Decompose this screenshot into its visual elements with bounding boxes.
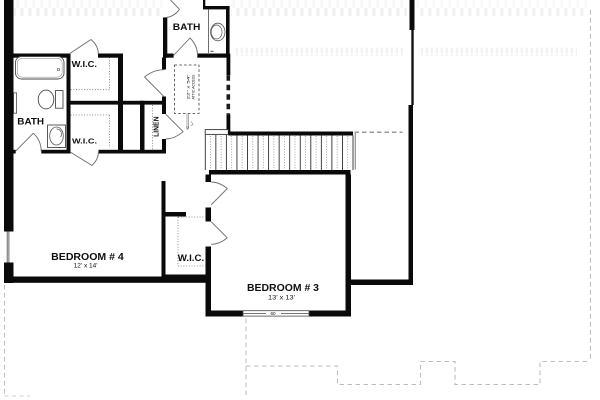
svg-text:13' x 13': 13' x 13' <box>268 295 295 302</box>
svg-text:BEDROOM # 4: BEDROOM # 4 <box>51 252 124 263</box>
svg-text:W.I.C.: W.I.C. <box>72 136 97 145</box>
svg-text:BEDROOM # 3: BEDROOM # 3 <box>247 283 319 294</box>
svg-text:W.I.C.: W.I.C. <box>178 253 204 263</box>
svg-text:BATH: BATH <box>173 22 201 33</box>
svg-text:12' x 14': 12' x 14' <box>74 263 98 270</box>
svg-text:ATTIC ACCESS: ATTIC ACCESS <box>191 74 196 99</box>
svg-text:22" x 54": 22" x 54" <box>185 74 190 100</box>
svg-text:W.I.C.: W.I.C. <box>72 60 97 69</box>
svg-text:BATH: BATH <box>17 117 44 128</box>
svg-text:LINEN: LINEN <box>154 116 161 136</box>
svg-text:60: 60 <box>271 311 277 316</box>
